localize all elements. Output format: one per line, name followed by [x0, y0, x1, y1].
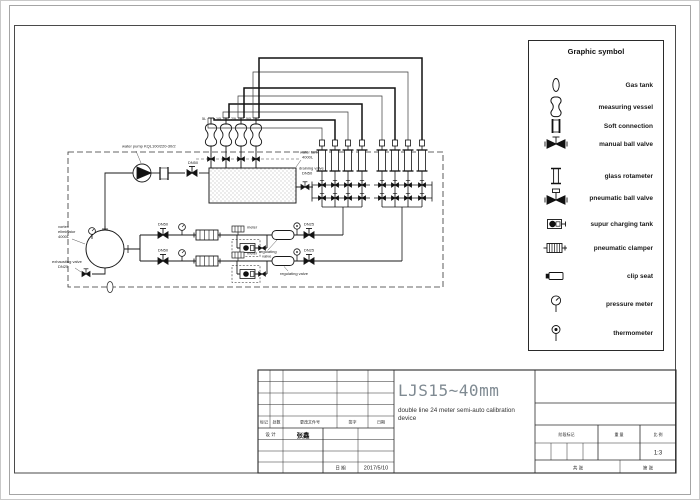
legend-label: glass rotameter [605, 173, 653, 180]
pressure-vessel [72, 226, 140, 277]
drawing-subtitle-1: double line 24 meter semi-auto calibrati… [398, 407, 515, 414]
legend-label: clip seat [627, 273, 653, 280]
exhaust-label-2: DN25 [58, 264, 69, 269]
soft-connection-symbol [160, 167, 168, 180]
legend-label: supur charging tank [591, 221, 653, 228]
sheet-total: 共 张 [573, 465, 584, 472]
pump-discharge-valve [187, 167, 197, 177]
legend-item-manual-ball-valve: manual ball valve [529, 133, 663, 155]
graphic-symbol-legend: Graphic symbol Gas tank measuring vessel… [528, 40, 664, 351]
legend-item-pneumatic-ball-valve: pneumatic ball valve [529, 187, 663, 209]
date-value: 2017/5/10 [364, 466, 388, 472]
regulating-valve-label-2: regulating valve [280, 271, 309, 276]
glass-rotameter-icon [541, 165, 571, 187]
regulating-valve-label-1b: valve [262, 254, 272, 259]
gas-tank-icon [541, 74, 571, 96]
exhausting-valve [82, 269, 90, 277]
vessel-label-3: 25L [231, 117, 237, 121]
vessel-label-4: 50L [246, 117, 252, 121]
drawing-subtitle-2: device [398, 415, 417, 422]
water-tank-volume: 4000L [302, 155, 314, 160]
manual-ball-valve-icon [541, 133, 571, 155]
vortex-volume: 4000L [58, 234, 70, 239]
rev-header-count: 处数 [273, 419, 281, 425]
vessel-label-1: 5L [202, 117, 206, 121]
legend-label: Soft connection [604, 123, 653, 130]
draining-valve-dn: DN50 [302, 171, 313, 176]
clip-seat-icon [541, 265, 571, 287]
legend-label: thermometer [613, 330, 653, 337]
pump-valve-dn-label: DN50 [188, 160, 199, 165]
legend-item-thermometer: thermometer [529, 322, 663, 344]
branch1-meter-label: meter [247, 225, 258, 230]
branch2-reg-dn: DN25 [304, 248, 315, 253]
legend-label: pneumatic clamper [594, 245, 653, 252]
legend-label: measuring vessel [598, 104, 653, 111]
vessel-label-2: 10L [216, 117, 222, 121]
branch2-meter-label: meter [247, 251, 258, 256]
water-pump-label: water pump KQL100/220-30/2 [122, 144, 176, 149]
rotameter-bank-2 [374, 140, 432, 261]
drawing-sheet: water pump KQL100/220-30/2 DN50 water ta… [0, 0, 700, 500]
stage-mark-label: 阶段标记 [559, 431, 575, 437]
legend-item-glass-rotameter: glass rotameter [529, 165, 663, 187]
legend-item-pressure-meter: pressure meter [529, 293, 663, 315]
branch1-reg-dn: DN25 [304, 222, 315, 227]
branch2-valve-dn: DN50 [158, 248, 169, 253]
pneumatic-ball-valve-icon [541, 187, 571, 209]
legend-item-supur-charging-tank: supur charging tank [529, 213, 663, 235]
rev-header-date: 日期 [377, 419, 385, 425]
legend-label: Gas tank [626, 82, 653, 89]
scale-value: 1:3 [654, 451, 663, 457]
pneumatic-clamper-icon [541, 237, 571, 259]
gas-tank-symbol [107, 282, 113, 293]
title-block-text: LJS15~40mm double line 24 meter semi-aut… [260, 381, 663, 472]
legend-label: manual ball valve [599, 141, 653, 148]
drawing-title: LJS15~40mm [398, 381, 499, 400]
legend-label: pneumatic ball valve [589, 195, 653, 202]
scale-label: 比 例 [653, 431, 662, 437]
rev-header-file: 更改文件号 [300, 419, 320, 425]
rev-header-sign: 签字 [349, 419, 357, 425]
measuring-vessels [196, 118, 300, 168]
date-label: 日 期 [335, 466, 346, 472]
legend-item-clip-seat: clip seat [529, 265, 663, 287]
legend-label: pressure meter [606, 301, 653, 308]
pipe-loops [208, 58, 422, 140]
design-label: 设 计 [265, 431, 276, 438]
branch1-valve-dn: DN50 [158, 222, 169, 227]
weight-label: 重 量 [614, 431, 623, 437]
sheet-number: 第 张 [643, 465, 654, 472]
water-tank [209, 160, 313, 203]
legend-item-gas-tank: Gas tank [529, 74, 663, 96]
designer-name: 张鑫 [297, 431, 311, 440]
supur-charging-tank-icon [541, 213, 571, 235]
rev-header-mark: 标记 [260, 419, 268, 425]
rotameter-bank-1 [312, 140, 370, 235]
thermometer-icon [541, 322, 571, 344]
draining-valve [301, 182, 309, 190]
legend-title: Graphic symbol [529, 47, 663, 56]
legend-item-pneumatic-clamper: pneumatic clamper [529, 237, 663, 259]
pressure-meter-icon [541, 293, 571, 315]
